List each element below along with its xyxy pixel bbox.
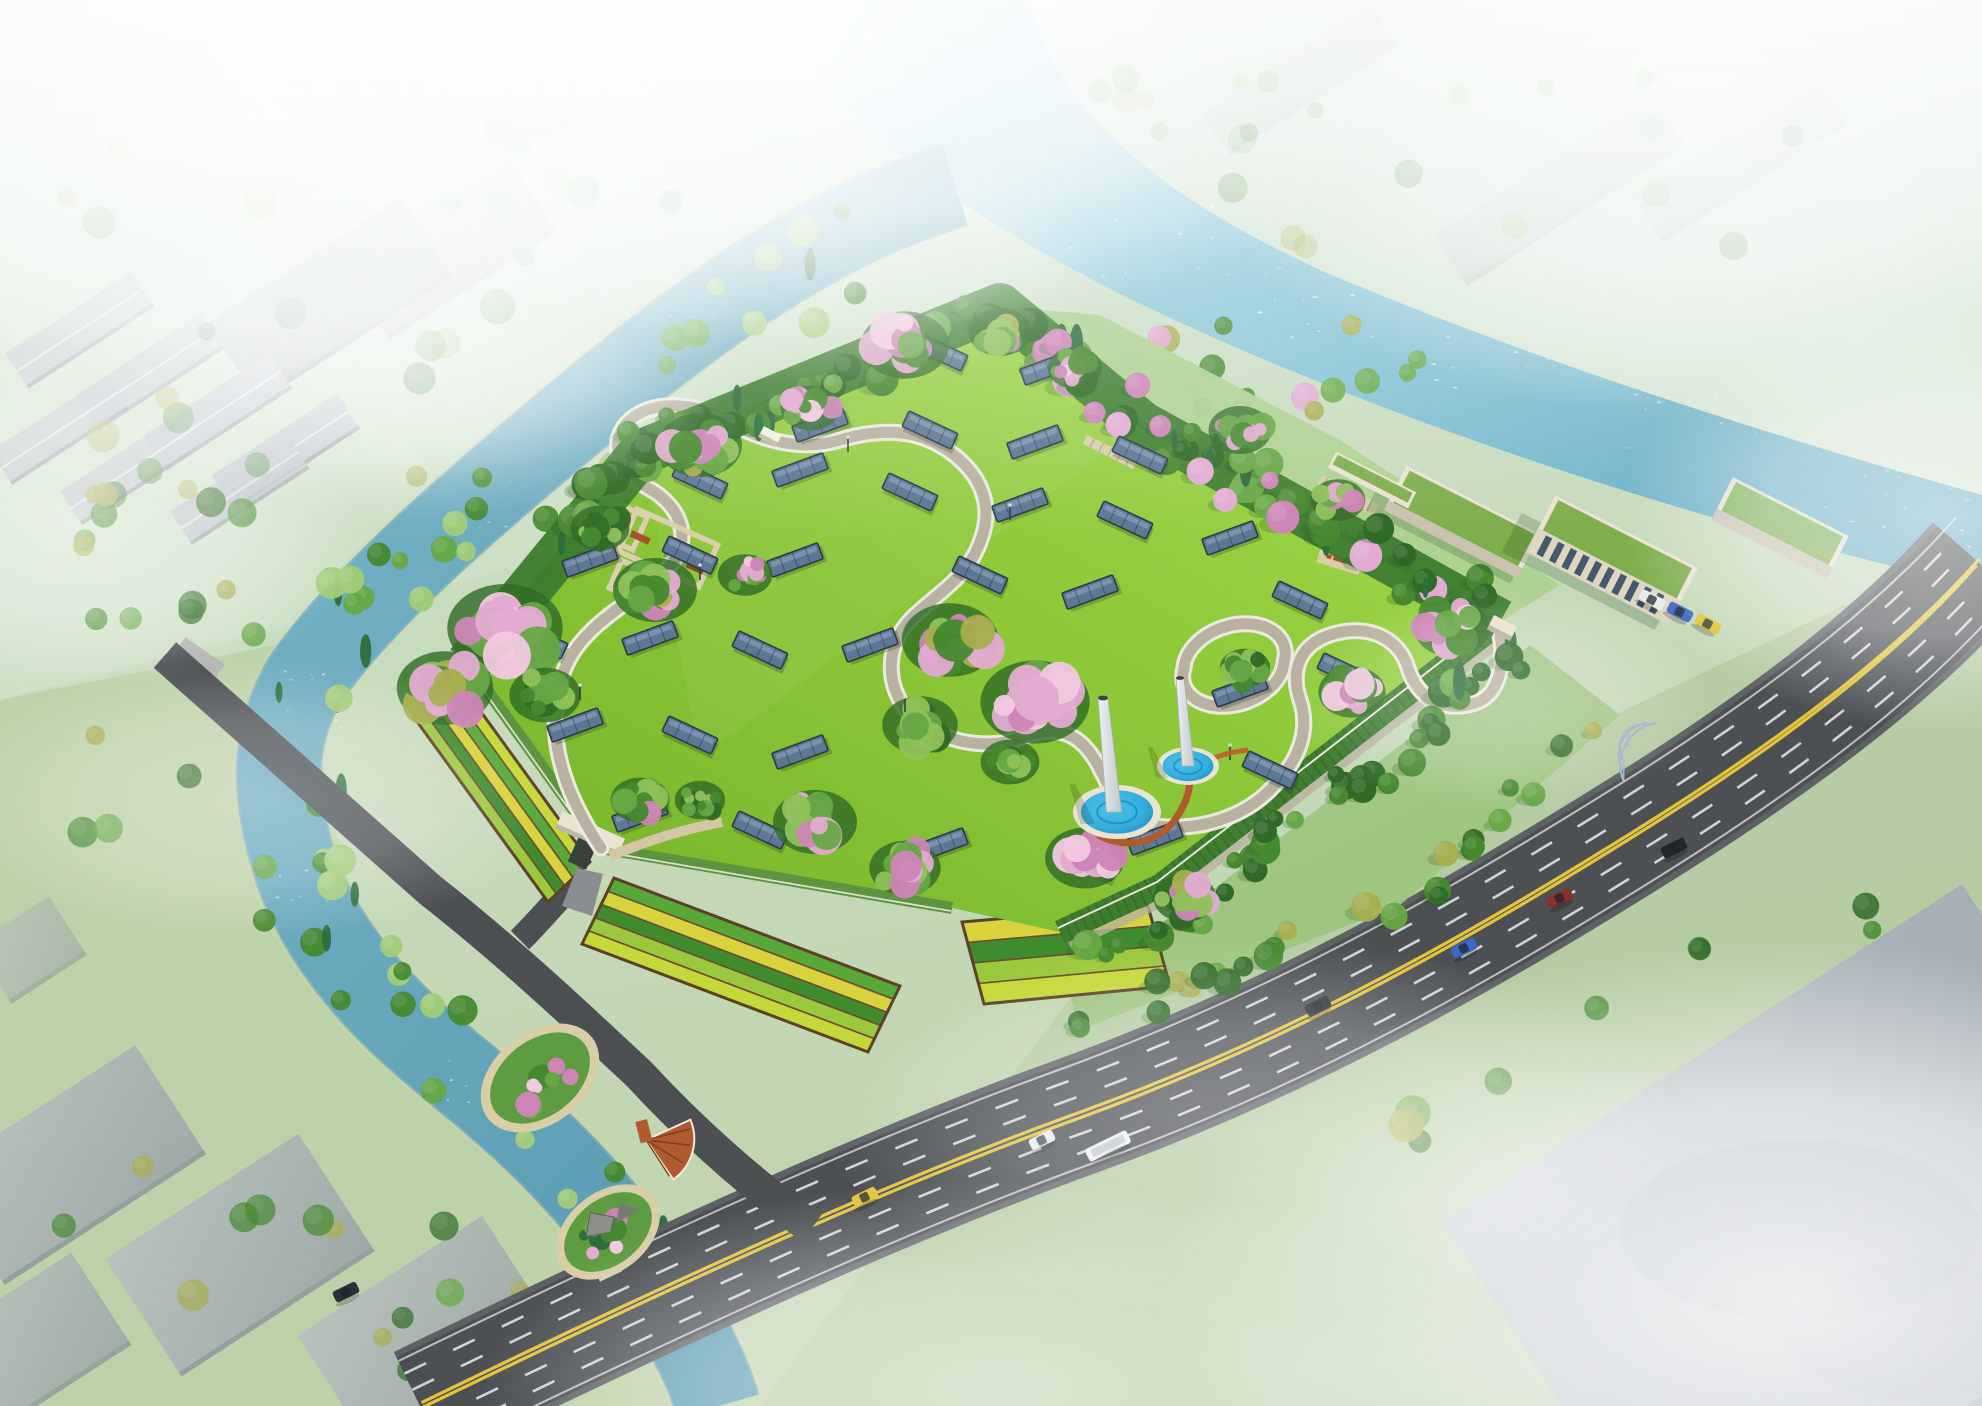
tree-highlight	[180, 1282, 197, 1299]
shrub	[750, 557, 764, 571]
tree-highlight	[1268, 812, 1277, 821]
tree-highlight	[1111, 938, 1120, 947]
shrub	[695, 791, 706, 802]
tree-highlight	[134, 1157, 146, 1169]
stack-opening	[1176, 676, 1184, 680]
lamp-post	[699, 566, 701, 580]
conifer-tree	[1422, 579, 1428, 598]
shrub	[960, 615, 995, 650]
fog-patch	[1290, 590, 1710, 810]
atmospheric-haze	[0, 0, 1982, 540]
tree-highlight	[511, 1282, 521, 1292]
tree-highlight	[1331, 787, 1342, 798]
shrub	[1250, 652, 1265, 667]
shrub	[1014, 676, 1059, 721]
tree-highlight	[393, 553, 402, 562]
tree-highlight	[1151, 922, 1161, 932]
shrub	[890, 851, 921, 882]
sparkle	[467, 1101, 471, 1103]
tree-highlight	[1287, 812, 1297, 822]
tree-highlight	[1393, 584, 1406, 597]
tree-highlight	[438, 1281, 454, 1297]
scene-svg	[0, 0, 1982, 1406]
aerial-rendering-canvas	[0, 0, 1982, 1406]
shrub	[628, 586, 655, 613]
lamp-head	[1228, 743, 1232, 747]
shrub	[1172, 892, 1191, 911]
stack-opening	[1098, 696, 1108, 701]
shrub	[613, 789, 637, 813]
tree-highlight	[392, 993, 406, 1007]
fog-patch	[830, 940, 1690, 1320]
sparkle	[465, 1085, 467, 1087]
tree-highlight	[410, 588, 424, 602]
flower-cluster-pinkheavy	[980, 660, 1089, 743]
tree-highlight	[395, 963, 405, 973]
tree-highlight	[559, 1190, 570, 1201]
tree-highlight	[1382, 905, 1397, 920]
tree-highlight	[450, 997, 467, 1014]
shrub	[1154, 891, 1169, 906]
sparkle	[450, 1079, 453, 1081]
lamp-head	[698, 563, 702, 567]
flower-cluster-green	[509, 668, 580, 722]
shrub	[522, 668, 540, 686]
shrub	[697, 801, 707, 811]
tree-highlight	[433, 538, 448, 553]
tree-highlight	[1074, 932, 1091, 949]
shrub	[728, 579, 740, 591]
tree-highlight	[54, 1215, 67, 1228]
shrub	[810, 817, 828, 835]
shrub	[1063, 835, 1090, 862]
lamp-post	[904, 698, 906, 712]
tree-highlight	[1352, 541, 1370, 559]
tree-highlight	[422, 995, 436, 1009]
tree-highlight	[1228, 853, 1237, 862]
tree-highlight	[369, 544, 382, 557]
flower-cluster-pink	[718, 554, 773, 596]
shrub	[531, 700, 546, 715]
shrub	[1007, 754, 1022, 769]
tree-highlight	[393, 1308, 405, 1320]
shrub	[901, 712, 929, 740]
shrub	[540, 672, 569, 701]
tree-highlight	[1465, 838, 1477, 850]
lamp-post	[579, 686, 581, 700]
shrub	[1229, 660, 1251, 682]
tree-highlight	[458, 543, 469, 554]
sparkle	[448, 1060, 451, 1062]
tree-highlight	[232, 1205, 248, 1221]
conifer-tree	[360, 634, 371, 668]
shrub	[681, 787, 692, 798]
tree-highlight	[1435, 843, 1449, 857]
tree-highlight	[1354, 894, 1370, 910]
lamp-head	[578, 683, 582, 687]
lamp-head	[903, 695, 907, 699]
flower-cluster-green	[981, 740, 1040, 785]
tree-highlight	[1255, 821, 1268, 834]
tree-highlight	[1431, 888, 1442, 899]
tree-highlight	[1279, 922, 1290, 933]
shrub	[682, 802, 696, 816]
tree-highlight	[332, 992, 343, 1003]
tree-highlight	[606, 1163, 618, 1175]
tree-highlight	[382, 937, 394, 949]
tree-highlight	[423, 1080, 437, 1094]
shrub	[483, 631, 531, 679]
tree-highlight	[1490, 811, 1503, 824]
tree-highlight	[305, 1207, 322, 1224]
shrub	[520, 688, 535, 703]
tree-highlight	[1854, 895, 1869, 910]
shrub	[994, 695, 1015, 716]
tree-highlight	[1217, 885, 1227, 895]
tree-highlight	[1864, 922, 1874, 932]
flower-cluster-mix	[613, 558, 697, 622]
shrub	[1184, 872, 1211, 899]
tree-highlight	[1394, 545, 1407, 558]
sparkle	[447, 1099, 450, 1101]
tree-highlight	[345, 595, 357, 607]
tree-highlight	[375, 1329, 385, 1339]
tree-highlight	[432, 1214, 448, 1230]
tree-highlight	[517, 1131, 528, 1142]
shrub	[710, 792, 721, 803]
